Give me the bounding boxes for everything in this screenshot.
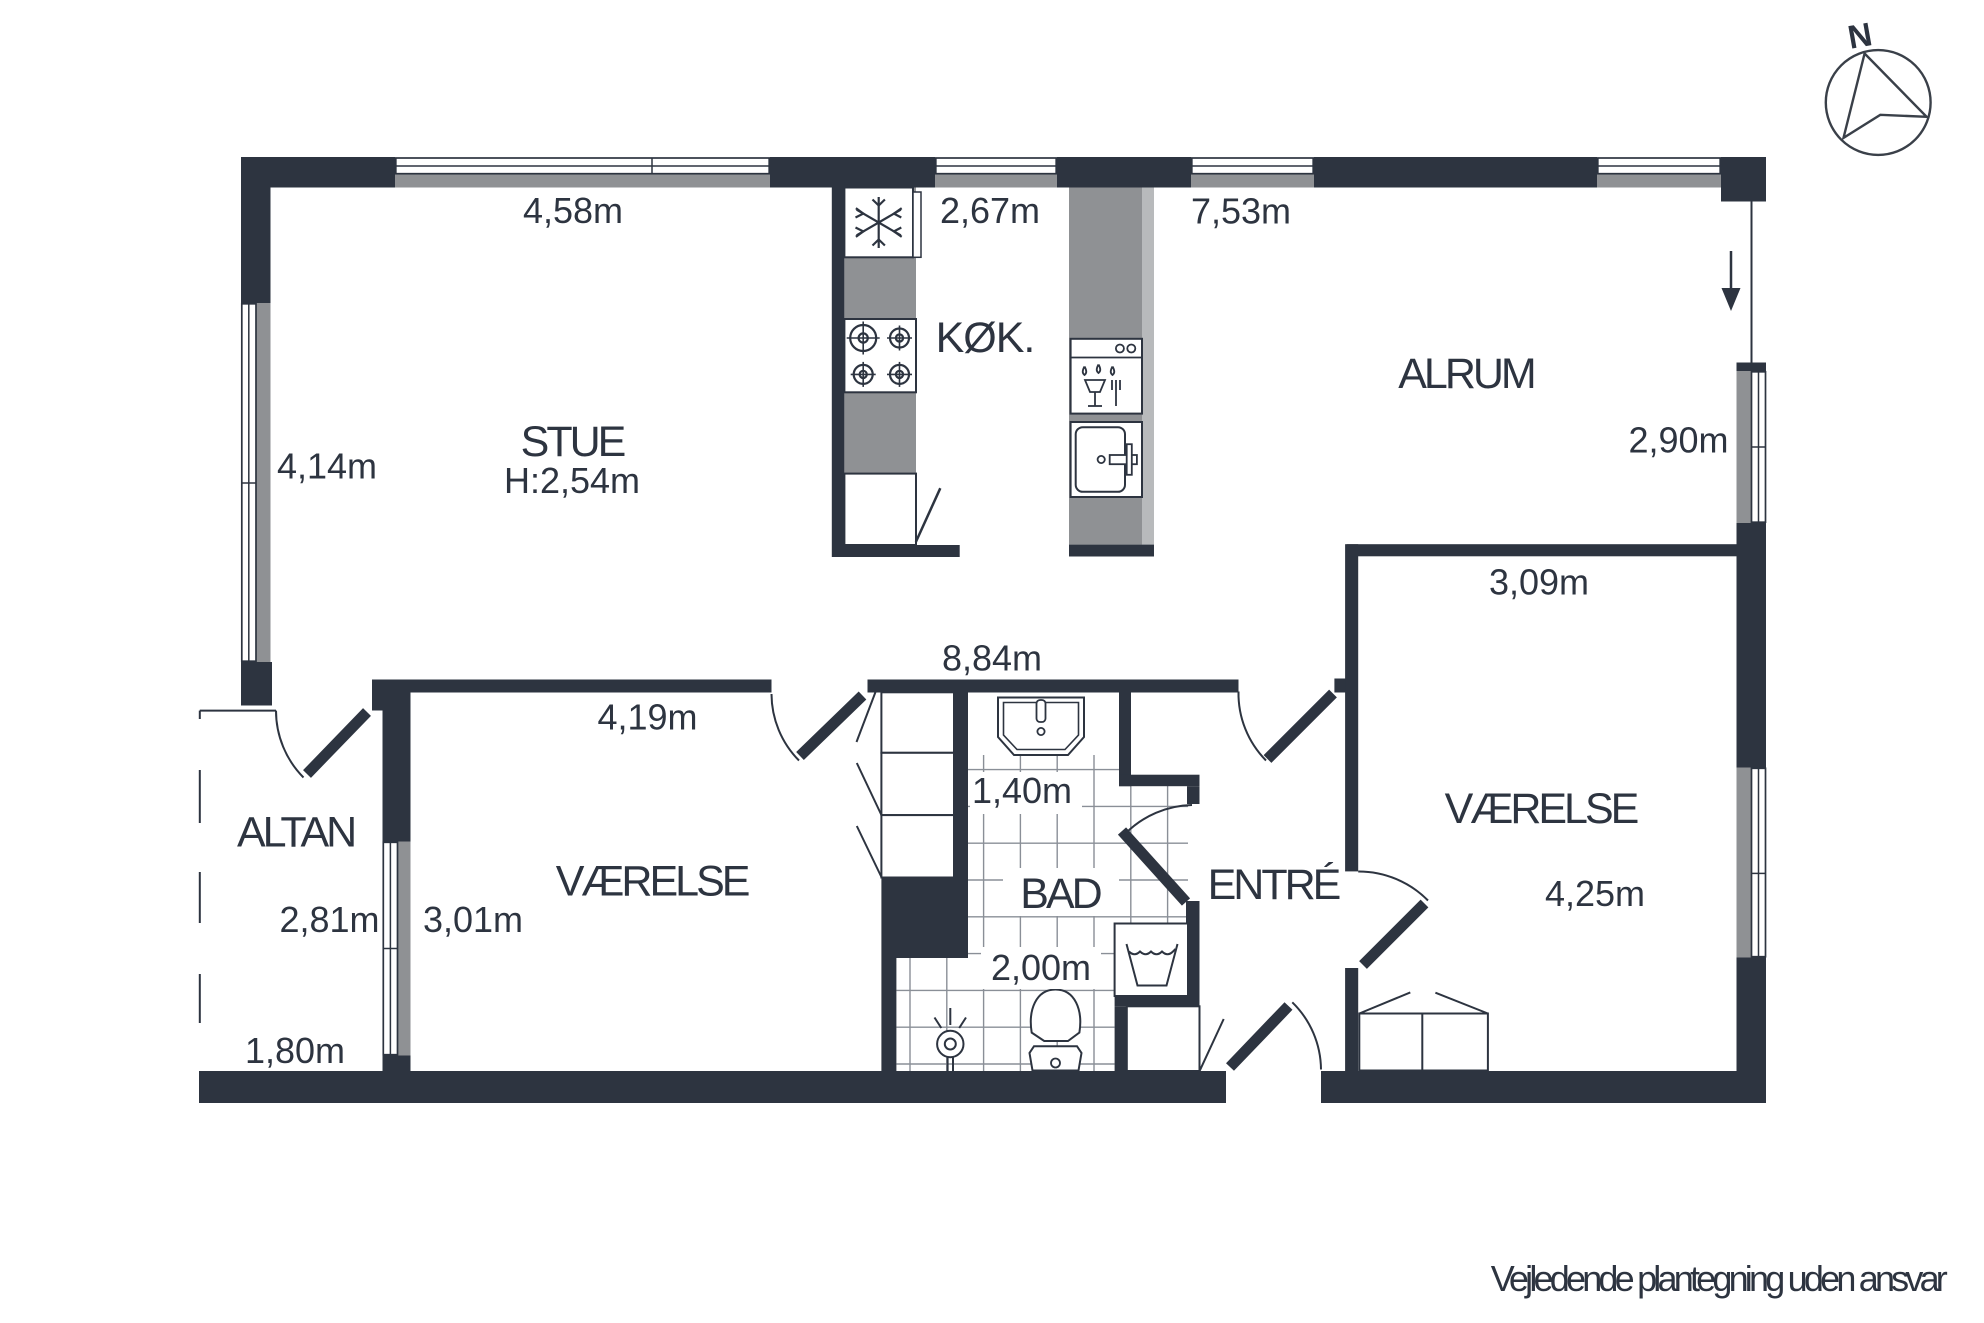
svg-text:H:2,54m: H:2,54m bbox=[504, 460, 640, 501]
svg-text:8,84m: 8,84m bbox=[942, 638, 1042, 679]
svg-text:4,19m: 4,19m bbox=[597, 697, 697, 738]
svg-text:3,09m: 3,09m bbox=[1489, 562, 1589, 603]
svg-text:ALRUM: ALRUM bbox=[1398, 350, 1534, 398]
svg-text:ENTRÉ: ENTRÉ bbox=[1208, 861, 1340, 909]
svg-text:2,81m: 2,81m bbox=[279, 899, 379, 940]
svg-text:2,00m: 2,00m bbox=[991, 947, 1091, 988]
svg-text:2,67m: 2,67m bbox=[940, 190, 1040, 231]
svg-text:4,25m: 4,25m bbox=[1545, 873, 1645, 914]
svg-text:1,40m: 1,40m bbox=[972, 770, 1072, 811]
svg-text:Vejledende plantegning uden an: Vejledende plantegning uden ansvar bbox=[1491, 1258, 1948, 1299]
svg-text:VÆRELSE: VÆRELSE bbox=[556, 858, 749, 906]
svg-text:2,90m: 2,90m bbox=[1628, 420, 1728, 461]
svg-text:ALTAN: ALTAN bbox=[237, 809, 354, 857]
svg-text:7,53m: 7,53m bbox=[1191, 191, 1291, 232]
svg-text:BAD: BAD bbox=[1020, 870, 1100, 918]
svg-text:1,80m: 1,80m bbox=[245, 1030, 345, 1071]
svg-text:3,01m: 3,01m bbox=[423, 899, 523, 940]
svg-text:KØK.: KØK. bbox=[936, 314, 1035, 362]
svg-text:STUE: STUE bbox=[521, 418, 625, 466]
svg-text:4,58m: 4,58m bbox=[523, 190, 623, 231]
svg-text:VÆRELSE: VÆRELSE bbox=[1445, 785, 1638, 833]
svg-text:4,14m: 4,14m bbox=[277, 446, 377, 487]
